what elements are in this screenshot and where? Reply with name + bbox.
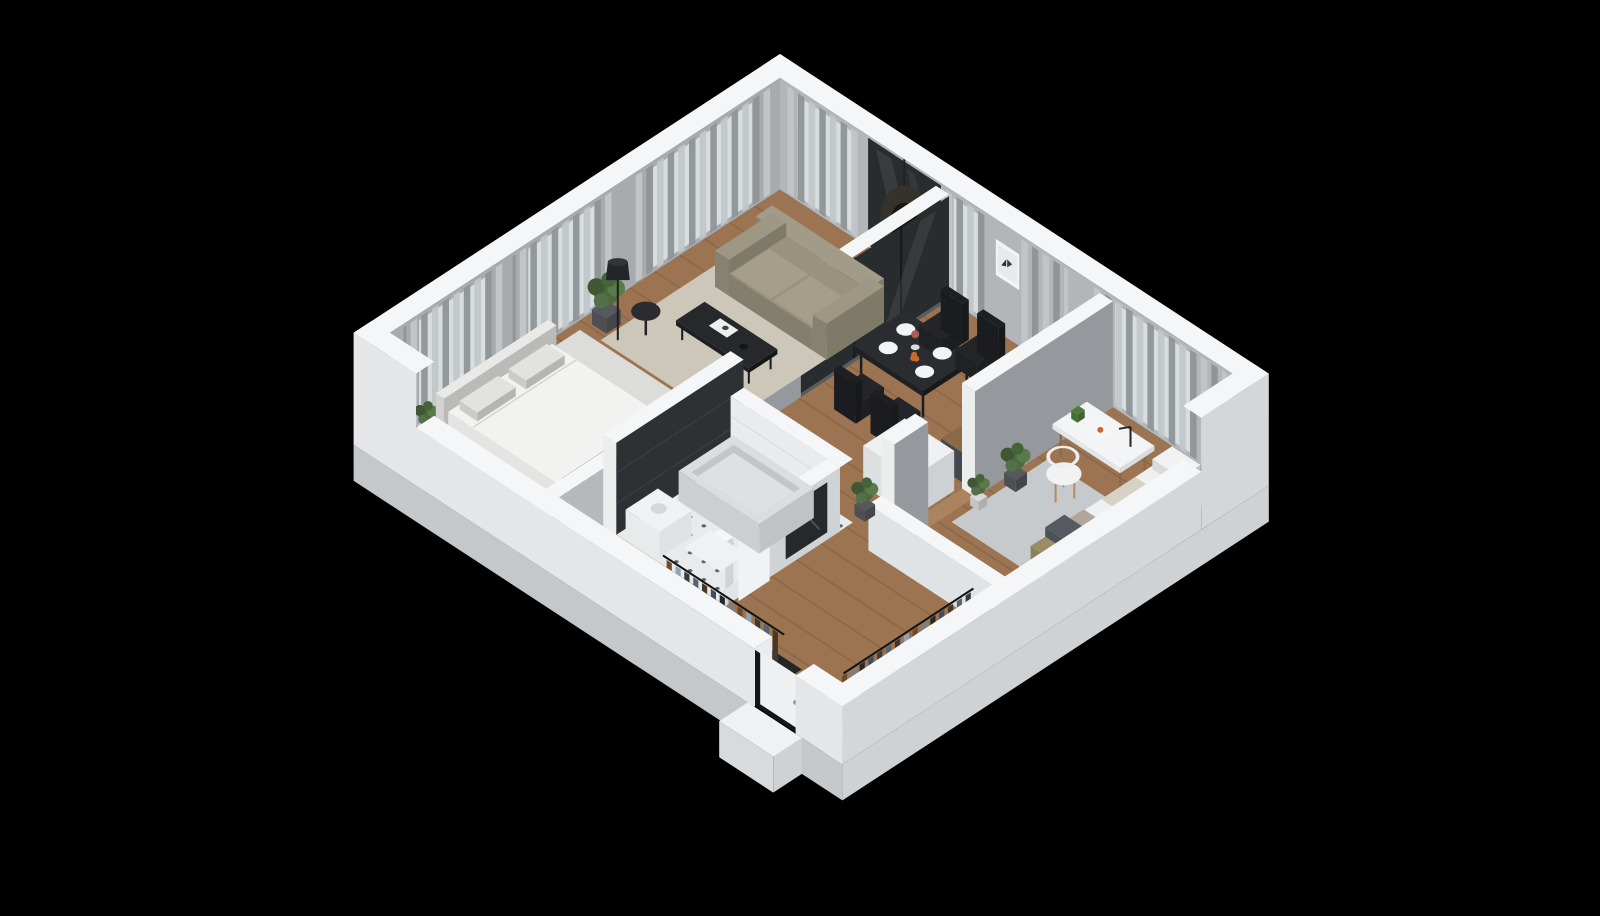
curtain-panel: [1147, 322, 1154, 432]
curtain-panel: [732, 109, 739, 219]
curtain-panel: [636, 172, 643, 282]
curtain-panel: [1137, 315, 1144, 425]
wall-end: [603, 434, 616, 535]
curtain-panel: [668, 151, 675, 261]
curtain-panel: [851, 128, 858, 238]
curtain-panel: [1179, 343, 1186, 453]
curtain-panel: [552, 227, 559, 337]
hall-plant-foliage: [856, 493, 867, 504]
curtain-panel: [678, 144, 685, 254]
curtain-panel: [1021, 239, 1028, 349]
curtain-panel: [646, 165, 653, 275]
curtain-panel: [1158, 329, 1165, 439]
curtain-panel: [753, 95, 760, 205]
curtain-panel: [967, 204, 974, 314]
curtain-panel: [1126, 308, 1133, 418]
curtain-panel: [957, 197, 964, 307]
flowers: [911, 330, 919, 338]
curtain-panel: [689, 137, 696, 247]
kids-plant-small-foliage: [976, 474, 985, 483]
curtain-panel: [573, 213, 580, 323]
curtain-panel: [798, 93, 805, 203]
curtain-panel: [830, 114, 837, 224]
hall-plant-foliage: [861, 477, 872, 488]
curtain-panel: [819, 107, 826, 217]
floor-lamp-top: [608, 258, 628, 266]
bedroom-plant-foliage: [594, 293, 609, 308]
apartment-floorplan-3d-render: ❄: [40, 16, 1600, 916]
kids-plant-foliage: [1006, 460, 1018, 472]
curtain-panel: [721, 116, 728, 226]
kids-plant-foliage: [1012, 443, 1024, 455]
fruit: [910, 355, 916, 361]
curtain-panel: [787, 86, 794, 196]
curtain-panel: [978, 211, 985, 321]
curtain-panel: [764, 88, 771, 198]
curtain-panel: [809, 100, 816, 210]
kids-plant-small-foliage: [971, 487, 980, 496]
wall-end: [824, 695, 842, 765]
curtain-panel: [742, 102, 749, 212]
curtain-panel: [1115, 301, 1122, 411]
hanging-clothes: [773, 629, 778, 662]
curtain-panel: [700, 130, 707, 240]
curtain-panel: [1169, 336, 1176, 446]
curtain-panel: [657, 158, 664, 268]
curtain-panel: [584, 206, 591, 316]
curtain-panel: [841, 121, 848, 231]
floorplan-scene: ❄: [40, 16, 1600, 916]
curtain-panel: [710, 123, 717, 233]
bedroom-plant-small-foliage: [423, 401, 433, 411]
book-picture: [1097, 427, 1103, 433]
curtain-panel: [562, 220, 569, 330]
dining-chair-back: [856, 380, 862, 424]
dining-chair-back: [963, 300, 969, 344]
